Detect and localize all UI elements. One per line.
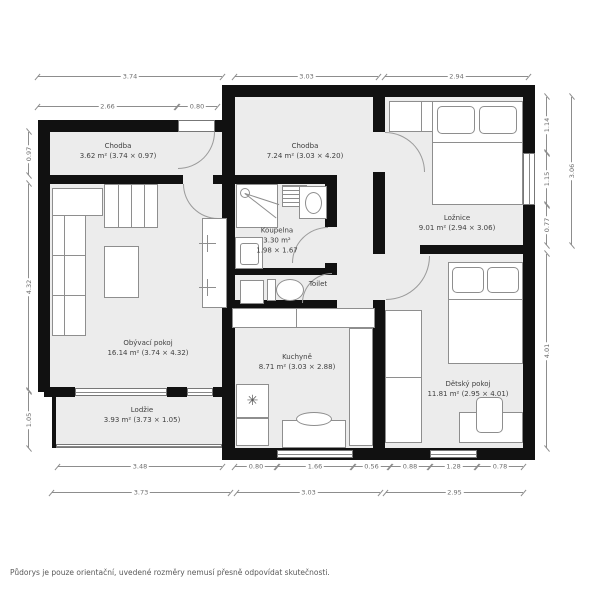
dimension: 3.06 — [571, 97, 572, 245]
room-label-chodba-main: Chodba7.24 m² (3.03 × 4.20) — [267, 142, 344, 162]
dimension: 0.97 — [28, 132, 29, 175]
wall — [44, 387, 75, 397]
window — [187, 388, 213, 396]
dimension: 1.15 — [546, 153, 547, 205]
cabinet — [104, 184, 158, 228]
dimension: 0.78 — [477, 466, 523, 467]
room-label-detsky-pokoj: Dětský pokoj11.81 m² (2.95 × 4.01) — [427, 380, 508, 400]
wall — [523, 205, 535, 460]
window — [523, 153, 535, 205]
sofa-chaise — [52, 188, 103, 216]
wall — [235, 268, 325, 275]
dimension: 1.14 — [546, 97, 547, 153]
dimension: 0.88 — [390, 466, 430, 467]
pot — [296, 412, 332, 426]
chair — [199, 279, 216, 296]
pillow — [479, 106, 517, 134]
wardrobe — [385, 310, 422, 443]
cabinet — [236, 418, 269, 446]
wall — [38, 120, 178, 132]
dimension: 4.01 — [546, 254, 547, 448]
room-label-koupelna: Koupelna3.30 m²1.98 × 1.67 — [256, 226, 298, 255]
window — [56, 444, 222, 448]
dimension: 3.74 — [38, 76, 222, 77]
kitchen-counter — [232, 308, 375, 328]
wall — [420, 245, 523, 254]
wall — [523, 85, 535, 153]
sofa — [52, 215, 86, 336]
dimension: 2.94 — [385, 76, 528, 77]
wall — [222, 448, 535, 460]
dimension: 4.32 — [28, 184, 29, 390]
snowflake-icon: ✳ — [247, 394, 259, 408]
wall — [384, 85, 535, 97]
room-label-toilet: Toilet — [309, 280, 327, 290]
room-label-chodba-top: Chodba3.62 m² (3.74 × 0.97) — [80, 142, 157, 162]
wardrobe — [389, 101, 433, 132]
window — [75, 388, 167, 396]
pillow — [452, 267, 484, 293]
dimension: 3.03 — [237, 492, 380, 493]
kitchen-counter — [349, 328, 373, 446]
toilet-bowl — [276, 279, 304, 301]
dimension: 0.80 — [235, 466, 277, 467]
wall — [44, 175, 183, 184]
shower — [236, 184, 278, 228]
room-label-kuchyne: Kuchyně8.71 m² (3.03 × 2.88) — [259, 353, 336, 373]
dimension: 2.95 — [386, 492, 523, 493]
chair — [476, 397, 503, 433]
dimension: 2.66 — [38, 106, 177, 107]
dimension: 1.28 — [430, 466, 477, 467]
dimension: 1.05 — [28, 392, 29, 448]
fridge: ✳ — [236, 384, 269, 418]
room-label-lodzie: Lodžie3.93 m² (3.73 × 1.05) — [104, 406, 181, 426]
pillow — [437, 106, 475, 134]
window — [277, 450, 353, 458]
dimension: 0.56 — [353, 466, 390, 467]
coffee-table — [104, 246, 139, 298]
small-basin — [240, 280, 264, 304]
wall — [235, 175, 337, 184]
wall — [167, 387, 187, 397]
room-label-loznice: Ložnice9.01 m² (2.94 × 3.06) — [419, 214, 496, 234]
dimension: 3.03 — [235, 76, 378, 77]
dimension: 0.77 — [546, 205, 547, 245]
washbasin — [299, 186, 327, 219]
wall — [228, 85, 390, 97]
chair — [199, 235, 216, 252]
wall — [373, 97, 385, 132]
room-label-obyvaci-pokoj: Obývací pokoj16.14 m² (3.74 × 4.32) — [107, 339, 188, 359]
disclaimer-text: Půdorys je pouze orientační, uvedené roz… — [10, 568, 330, 577]
wall — [373, 172, 385, 254]
dimension: 1.66 — [277, 466, 353, 467]
wall — [38, 120, 50, 392]
wall — [52, 392, 56, 448]
dimension: 0.80 — [177, 106, 217, 107]
wall — [213, 387, 235, 397]
pillow — [487, 267, 519, 293]
dimension: 3.48 — [58, 466, 222, 467]
entrance-door-slab — [178, 120, 215, 132]
floorplan-canvas: ✳ Chodba3.62 m² (3.74 × 0.97) Chodba7.24… — [0, 0, 600, 600]
window — [430, 450, 477, 458]
dimension: 3.73 — [52, 492, 230, 493]
toilet-tank — [267, 279, 276, 301]
